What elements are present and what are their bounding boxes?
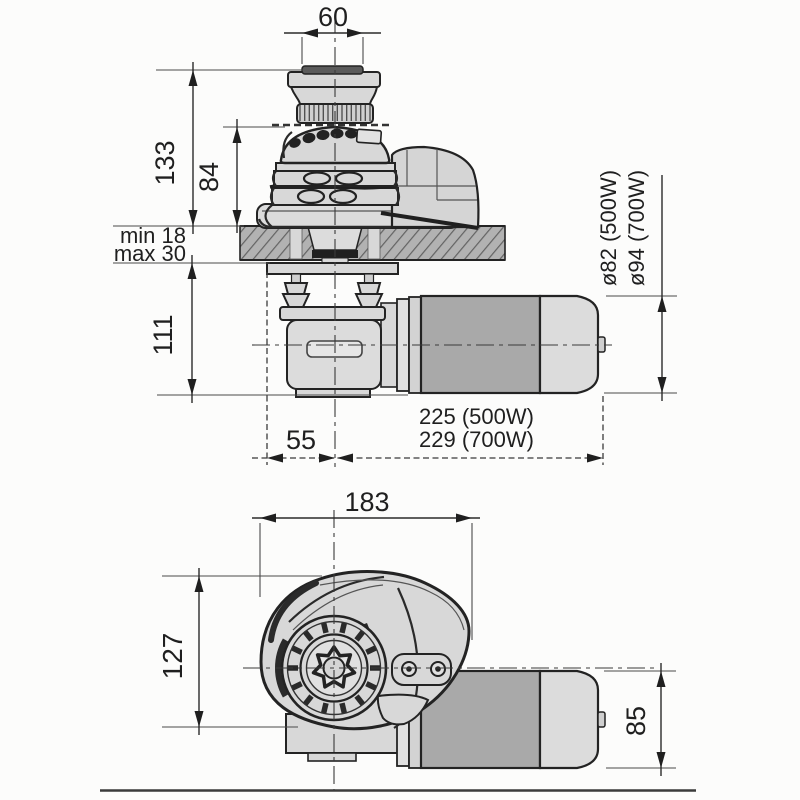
stud-left xyxy=(283,274,309,307)
dim-center-to-edge-label: 55 xyxy=(286,425,316,455)
side-view: 60 133 84 min 18 max 30 111 xyxy=(113,2,677,467)
motor-terminal xyxy=(598,337,605,352)
mounting-plate xyxy=(267,263,398,274)
scanned-drawing-page: 60 133 84 min 18 max 30 111 xyxy=(0,0,800,800)
dim-motor-height-label: 85 xyxy=(621,706,651,736)
dim-body-depth-label: 127 xyxy=(157,633,188,680)
capstan-drum xyxy=(272,66,390,125)
dim-length-700w-label: 229 (700W) xyxy=(419,427,534,452)
technical-drawing: 60 133 84 min 18 max 30 111 xyxy=(0,0,800,800)
capstan-top-cap xyxy=(302,66,363,74)
stud-channel-right xyxy=(368,227,380,259)
dim-deck-max-label: max 30 xyxy=(114,241,186,266)
dim-gypsy-height-label: 84 xyxy=(194,162,224,192)
above-deck-unit xyxy=(257,66,478,228)
dim-motor-dia-500w-label: ø82 (500W) xyxy=(596,170,621,286)
dim-capstan-width-label: 60 xyxy=(318,2,348,32)
dim-length-500w-label: 225 (500W) xyxy=(419,404,534,429)
gearbox-flange xyxy=(280,307,385,320)
deck-section xyxy=(240,226,505,263)
stud-right xyxy=(356,274,382,307)
dim-below-deck-label: 111 xyxy=(148,314,178,355)
plan-view: 183 127 85 xyxy=(157,487,676,790)
stud-channel-left xyxy=(290,227,302,259)
below-deck-assembly xyxy=(267,263,605,397)
dim-height-above-deck-label: 133 xyxy=(150,140,180,185)
dim-motor-dia-700w-label: ø94 (700W) xyxy=(624,170,649,286)
dim-body-width-label: 183 xyxy=(344,487,389,517)
plan-motor-end-cap xyxy=(540,671,598,768)
